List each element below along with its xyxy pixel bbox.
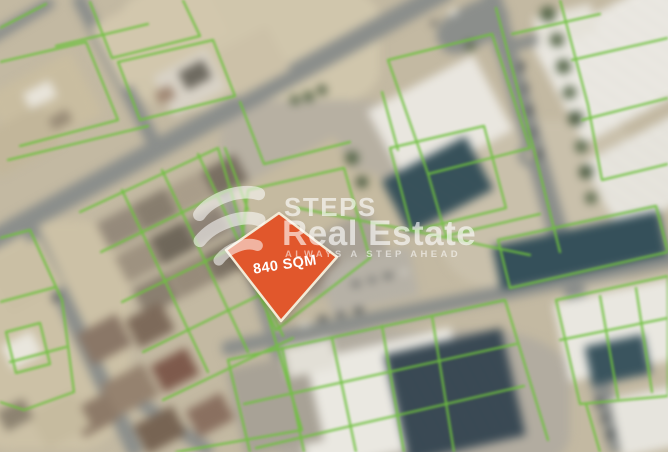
plot-highlight-layer <box>0 0 668 452</box>
satellite-map-image: 840 SQM STEPS Real Estate ALWAYS A STEP … <box>0 0 668 452</box>
